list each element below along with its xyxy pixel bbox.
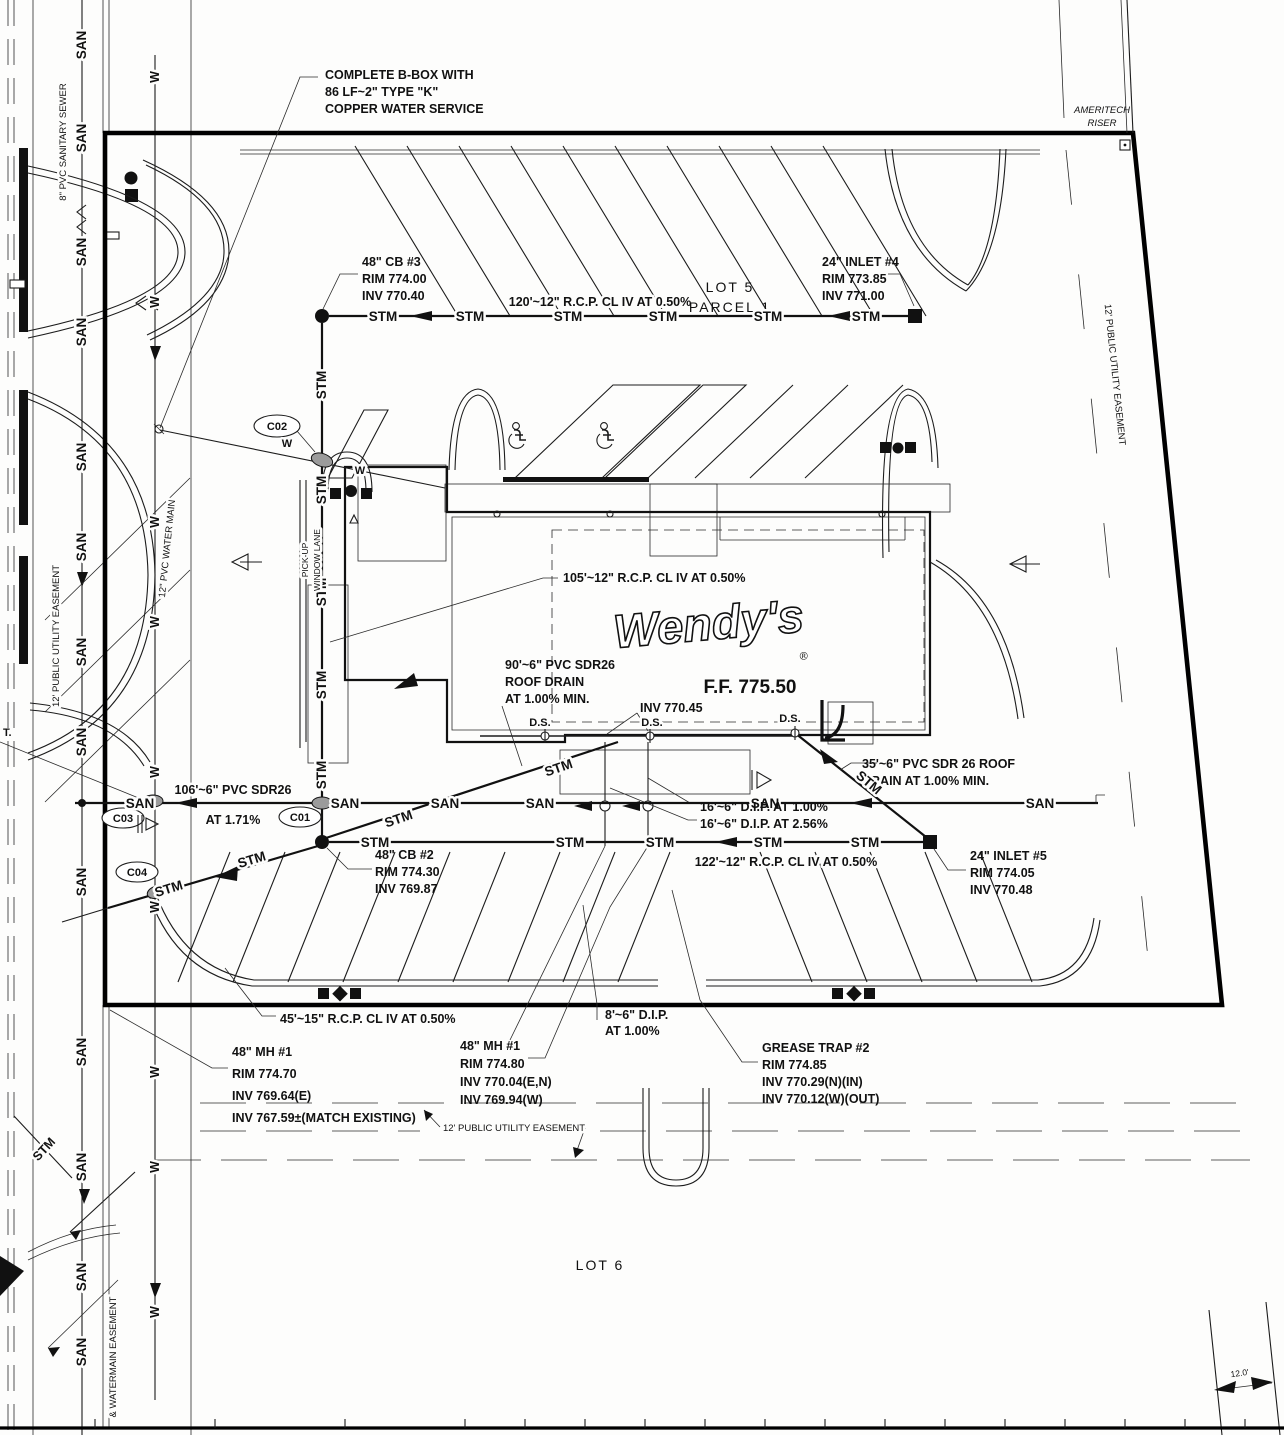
dimension-label: 12.0' (1230, 1367, 1250, 1379)
hatched-no-parking-stall (605, 385, 746, 478)
sheet-border (0, 1419, 1284, 1428)
san-label: SAN (74, 1263, 89, 1292)
cb3-callout: 48" CB #3 (362, 255, 421, 269)
cb2-callout: 48" CB #2 (375, 848, 434, 862)
san-label: SAN (74, 443, 89, 472)
rcp120-note: 120'~12" R.C.P. CL IV AT 0.50% (509, 295, 691, 309)
pue-bottom-label: 12' PUBLIC UTILITY EASEMENT (443, 1123, 585, 1134)
inlet-4-symbol (908, 309, 922, 323)
sign-symbol (106, 232, 119, 239)
mh1-east-callout: INV 769.94(W) (460, 1093, 543, 1107)
stm-label: STM (556, 835, 585, 850)
san-label: SAN (74, 533, 89, 562)
cut-text: T. (3, 727, 12, 739)
stm-label: STM (236, 848, 268, 871)
catch-basin-3-symbol (315, 309, 329, 323)
pue-right-label: 12' PUBLIC UTILITY EASEMENT (1102, 304, 1128, 447)
grease-trap-callout: INV 770.12(W)(OUT) (762, 1092, 879, 1106)
stm-label: STM (851, 835, 880, 850)
roof-inv-note: INV 770.45 (640, 701, 703, 715)
stm-label: STM (314, 476, 329, 505)
san-label: SAN (74, 638, 89, 667)
san-label: SAN (74, 124, 89, 153)
bbox-note: 86 LF~2" TYPE "K" (325, 85, 438, 99)
light-pole-symbol (832, 986, 875, 1002)
registered-mark: ® (799, 650, 808, 663)
roof-drain-90-note: 90'~6" PVC SDR26 (505, 658, 615, 672)
cleanout-tag-c04: C04 (127, 867, 148, 879)
water-label: W (148, 71, 162, 83)
downspout-label: D.S. (529, 717, 550, 729)
rcp45-note: 45'~15" R.C.P. CL IV AT 0.50% (280, 1012, 456, 1026)
stm-label: STM (314, 761, 329, 790)
stm-label: STM (646, 835, 675, 850)
dip8-note: AT 1.00% (605, 1024, 660, 1038)
mh1-east-callout: RIM 774.80 (460, 1057, 525, 1071)
stm-label: STM (754, 309, 783, 324)
stm-label: STM (361, 835, 390, 850)
san-label: SAN (431, 796, 460, 811)
inlet4-callout: RIM 773.85 (822, 272, 887, 286)
stm-label: STM (383, 807, 415, 830)
roof-drain-35-note: 35'~6" PVC SDR 26 ROOF (862, 757, 1015, 771)
san-label: SAN (331, 796, 360, 811)
pickup-lane-label: WINDOW LANE (312, 529, 322, 591)
water-label: W (355, 465, 366, 477)
sanitary-sewer-note: 8" PVC SANITARY SEWER (58, 83, 69, 201)
wheelchair-icon (597, 423, 614, 449)
water-label: W (282, 438, 293, 450)
south-easement (155, 1088, 1250, 1186)
watermain-easement-label: & WATERMAIN EASEMENT (108, 1296, 119, 1417)
mh1-west-callout: 48" MH #1 (232, 1045, 292, 1059)
san-label: SAN (74, 1153, 89, 1182)
ameritech-riser-label: AMERITECH (1073, 105, 1130, 116)
pue-left-label: 12' PUBLIC UTILITY EASEMENT (51, 565, 62, 707)
bbox-note: COMPLETE B-BOX WITH (325, 68, 474, 82)
dip16-note: 16'~6" D.I.P. AT 1.00% (700, 800, 828, 814)
water-label: W (148, 616, 162, 628)
roof-drain-90-note: ROOF DRAIN (505, 675, 584, 689)
san-label: SAN (526, 796, 555, 811)
west-street (0, 0, 262, 1435)
water-label: W (148, 1066, 162, 1078)
san-label: SAN (74, 728, 89, 757)
san106-note: 106'~6" PVC SDR26 (175, 783, 292, 797)
water-main-note: 12" PVC WATER MAIN (157, 499, 178, 598)
stm-label: STM (153, 877, 185, 900)
stm-label: STM (314, 671, 329, 700)
stm-label: STM (314, 371, 329, 400)
rcp122-note: 122'~12" R.C.P. CL IV AT 0.50% (695, 855, 877, 869)
stm-label: STM (543, 756, 575, 779)
grease-trap-callout: RIM 774.85 (762, 1058, 827, 1072)
water-label: W (148, 766, 162, 778)
bbox-note: COPPER WATER SERVICE (325, 102, 484, 116)
stm-label: STM (754, 835, 783, 850)
san-label: SAN (74, 31, 89, 60)
cleanout-symbol (312, 797, 332, 809)
water-label: W (148, 516, 162, 528)
inlet5-callout: 24" INLET #5 (970, 849, 1047, 863)
pickup-lane-label: PICK-UP (300, 542, 310, 577)
inlet5-callout: INV 770.48 (970, 883, 1033, 897)
mh1-east-callout: INV 770.04(E,N) (460, 1075, 552, 1089)
light-pole-symbol (880, 442, 916, 454)
inlet5-callout: RIM 774.05 (970, 866, 1035, 880)
roof-drain-90-note: AT 1.00% MIN. (505, 692, 590, 706)
sign-symbol (10, 280, 25, 288)
light-pole-symbol (318, 986, 361, 1002)
cleanout-tag-c01: C01 (290, 812, 310, 824)
san-label: SAN (74, 318, 89, 347)
annotations: SAN SAN SAN SAN SAN SAN SAN SAN SAN SAN … (3, 31, 1250, 1418)
inlet4-callout: 24" INLET #4 (822, 255, 899, 269)
finished-floor-label: F.F. 775.50 (704, 677, 797, 698)
water-label: W (148, 1161, 162, 1173)
mh1-west-callout: INV 767.59±(MATCH EXISTING) (232, 1111, 416, 1125)
mh1-west-callout: INV 769.64(E) (232, 1089, 311, 1103)
stm-label: STM (554, 309, 583, 324)
san-label: SAN (74, 238, 89, 267)
hydrant-symbol (125, 172, 138, 185)
east-right-of-way (1010, 0, 1280, 1435)
san-label: SAN (74, 868, 89, 897)
cb3-callout: RIM 774.00 (362, 272, 427, 286)
downspout-label: D.S. (641, 717, 662, 729)
cleanout-tag-c03: C03 (113, 813, 133, 825)
water-label: W (148, 901, 162, 913)
lot5-label: LOT 5 (706, 279, 755, 295)
stm-label: STM (649, 309, 678, 324)
cleanout-tag-c02: C02 (267, 421, 287, 433)
lot6-label: LOT 6 (576, 1257, 625, 1273)
ameritech-riser-label: RISER (1087, 118, 1116, 129)
cb3-callout: INV 770.40 (362, 289, 425, 303)
stm-label: STM (369, 309, 398, 324)
wendys-logo: Wendy's (611, 589, 805, 658)
mh1-east-callout: 48" MH #1 (460, 1039, 520, 1053)
inlet4-callout: INV 771.00 (822, 289, 885, 303)
cleanout-symbol (310, 450, 335, 469)
san-label: SAN (1026, 796, 1055, 811)
wheelchair-icon (509, 423, 526, 449)
cb2-callout: INV 769.87 (375, 882, 438, 896)
grease-trap-callout: GREASE TRAP #2 (762, 1041, 869, 1055)
stm-label: STM (852, 309, 881, 324)
san-label: SAN (74, 1038, 89, 1067)
water-label: W (148, 1306, 162, 1318)
san-label: SAN (126, 796, 155, 811)
san-label: SAN (74, 1338, 89, 1367)
site-plan-sheet: SAN SAN SAN SAN SAN SAN SAN SAN SAN SAN … (0, 0, 1284, 1435)
stm-label: STM (456, 309, 485, 324)
rcp105-note: 105'~12" R.C.P. CL IV AT 0.50% (563, 571, 745, 585)
san106-note: AT 1.71% (206, 813, 261, 827)
site-plan-canvas: SAN SAN SAN SAN SAN SAN SAN SAN SAN SAN … (0, 0, 1284, 1435)
dip16-note: 16'~6" D.I.P. AT 2.56% (700, 817, 828, 831)
grease-trap-callout: INV 770.29(N)(IN) (762, 1075, 863, 1089)
cb2-callout: RIM 774.30 (375, 865, 440, 879)
mh1-west-callout: RIM 774.70 (232, 1067, 297, 1081)
downspout-label: D.S. (779, 713, 800, 725)
dip8-note: 8'~6" D.I.P. (605, 1008, 668, 1022)
water-label: W (148, 296, 162, 308)
